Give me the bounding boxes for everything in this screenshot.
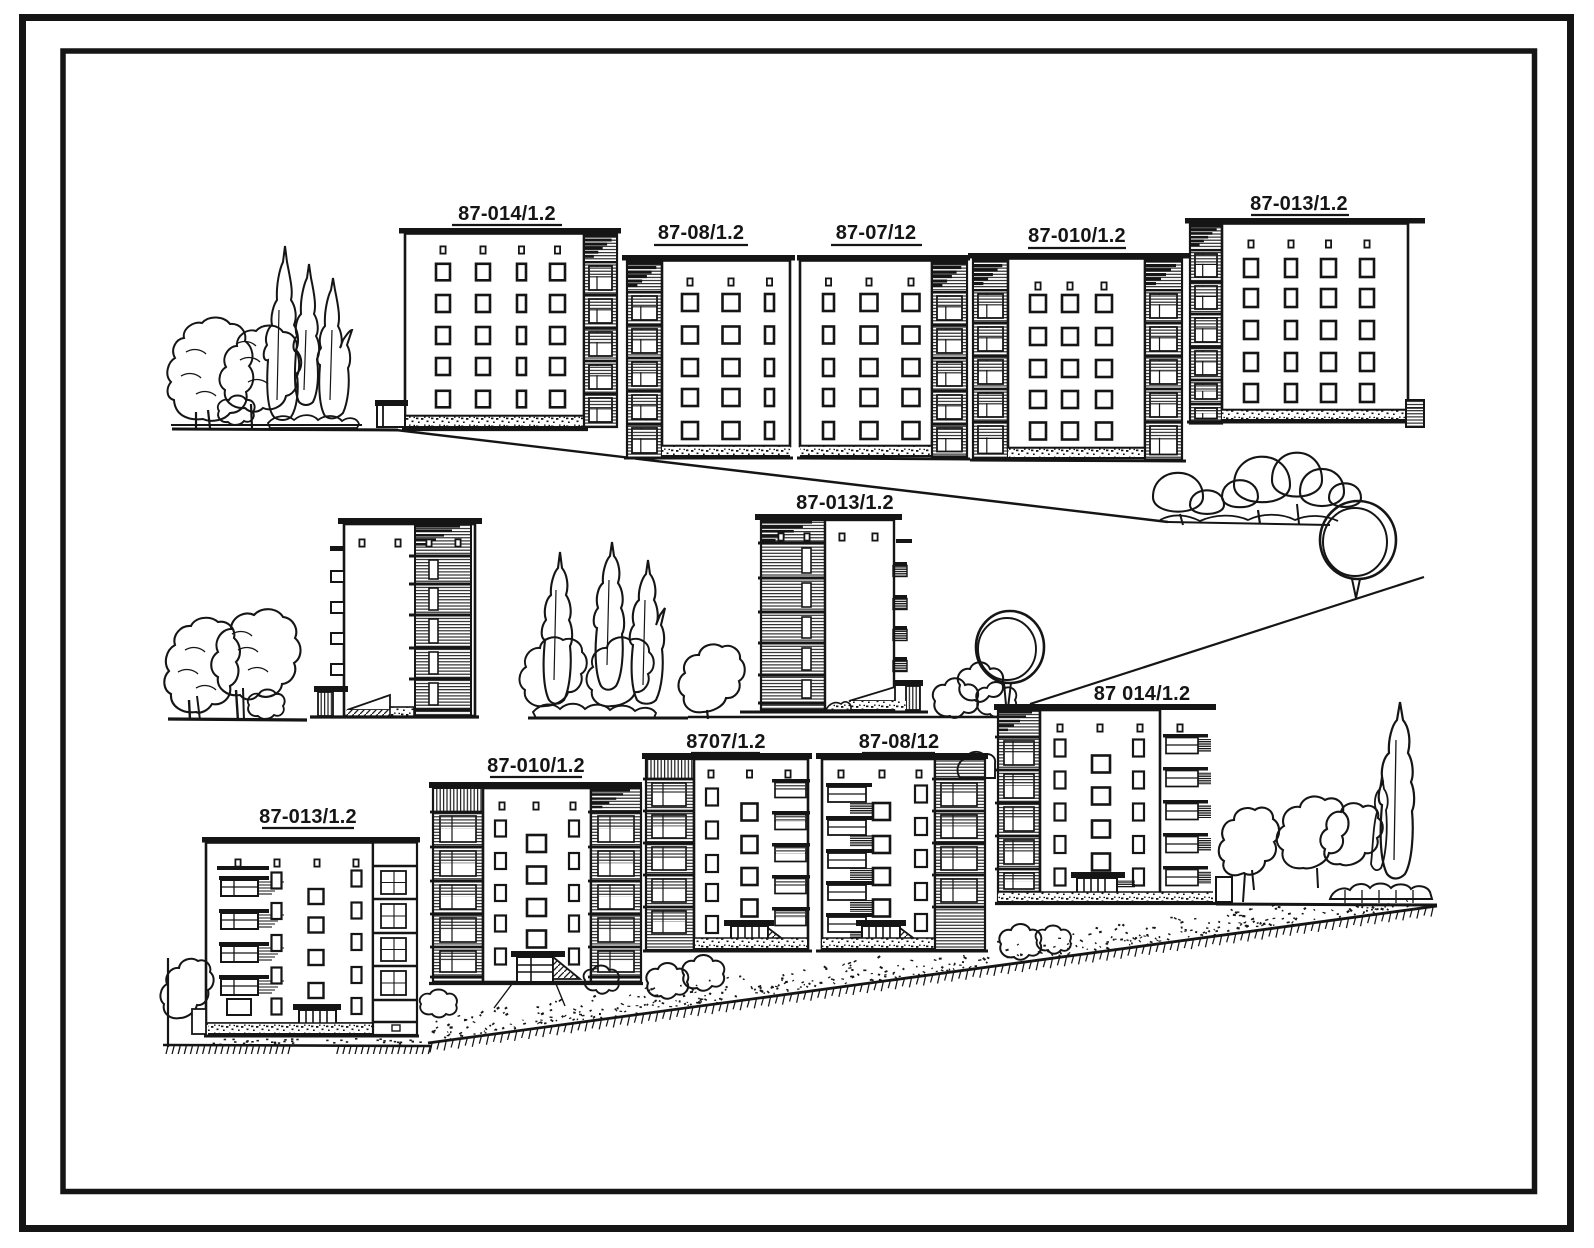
svg-text:8707/1.2: 8707/1.2	[686, 731, 765, 753]
svg-text:87-014/1.2: 87-014/1.2	[458, 203, 556, 225]
svg-text:87-08/12: 87-08/12	[859, 731, 940, 753]
svg-text:87-013/1.2: 87-013/1.2	[796, 492, 894, 514]
svg-text:87-08/1.2: 87-08/1.2	[658, 222, 744, 244]
svg-text:87-013/1.2: 87-013/1.2	[1250, 193, 1348, 215]
svg-text:87 014/1.2: 87 014/1.2	[1094, 683, 1191, 705]
svg-text:87-010/1.2: 87-010/1.2	[487, 755, 585, 777]
svg-text:87-07/12: 87-07/12	[836, 222, 917, 244]
svg-text:87-013/1.2: 87-013/1.2	[259, 806, 357, 828]
svg-text:87-010/1.2: 87-010/1.2	[1028, 225, 1126, 247]
